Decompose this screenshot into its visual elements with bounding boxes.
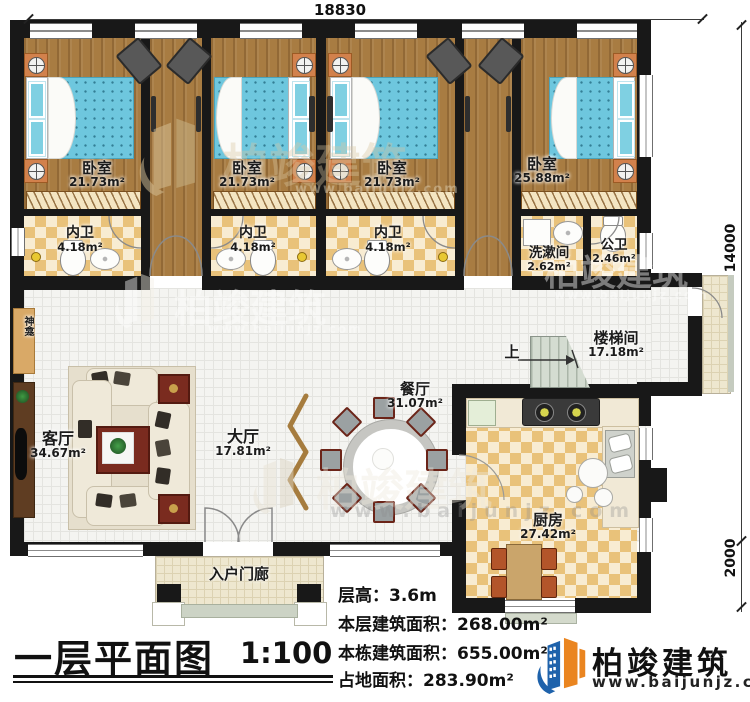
bedroom3-name: 卧室 — [337, 160, 447, 176]
brand-logo-orange-tower — [564, 638, 578, 688]
bedroom2-name: 卧室 — [192, 160, 302, 176]
stairwell-name: 楼梯间 — [561, 330, 671, 346]
publicbath-label: 公卫 2.46m² — [579, 238, 649, 264]
bath2-area: 4.18m² — [198, 241, 308, 253]
dim-right-porch-label: 2000 — [723, 525, 739, 591]
stairs-up-label: 上 — [502, 344, 522, 360]
brand-logo-orange-slab — [579, 649, 585, 679]
living-label: 客厅 34.67m² — [3, 430, 113, 460]
bedroom4-name: 卧室 — [487, 156, 597, 172]
brand-logo-icon — [534, 634, 592, 696]
entry-porch-label: 入户门廊 — [184, 566, 294, 582]
side-porch-door-arc — [692, 288, 722, 318]
spec-floor-height: 层高：3.6m — [338, 581, 437, 606]
spec-floor-area-value: 268.00m² — [457, 615, 548, 635]
bath1-label: 内卫 4.18m² — [25, 226, 135, 254]
bedroom4-label: 卧室 25.88m² — [487, 156, 597, 185]
spec-building-area: 本栋建筑面积：655.00m² — [338, 639, 548, 664]
spec-floor-height-label: 层高： — [338, 586, 389, 606]
spec-building-area-label: 本栋建筑面积： — [338, 644, 457, 664]
bath3-area: 4.18m² — [333, 241, 443, 253]
dim-line-top — [28, 19, 704, 20]
kitchen-label: 厨房 27.42m² — [493, 512, 603, 541]
kitchen-area: 27.42m² — [493, 528, 603, 541]
stairwell-label: 楼梯间 17.18m² — [561, 330, 671, 359]
dining-label: 餐厅 31.07m² — [360, 381, 470, 410]
dining-name: 餐厅 — [360, 381, 470, 397]
dining-area: 31.07m² — [360, 397, 470, 410]
kitchen-name: 厨房 — [493, 512, 603, 528]
spec-floor-area-label: 本层建筑面积： — [338, 615, 457, 635]
entry-door-arc-left — [205, 508, 239, 542]
dim-right-main-label: 14000 — [723, 213, 739, 283]
publicbath-area: 2.46m² — [579, 253, 649, 265]
bath3-name: 内卫 — [333, 226, 443, 241]
spec-floor-height-value: 3.6m — [389, 586, 437, 606]
spec-footprint-area-label: 占地面积： — [338, 671, 423, 691]
hall-area: 17.81m² — [188, 445, 298, 458]
bath3-label: 内卫 4.18m² — [333, 226, 443, 254]
living-area: 34.67m² — [3, 447, 113, 460]
bedroom3-label: 卧室 21.73m² — [337, 160, 447, 189]
publicbath-name: 公卫 — [579, 238, 649, 253]
plan-scale: 1:100 — [240, 636, 332, 670]
bath1-area: 4.18m² — [25, 241, 135, 253]
brand-url: www.baijunjz.com — [592, 673, 750, 691]
floor-plan: 神龛 — [0, 0, 750, 702]
brand-logo — [534, 634, 594, 700]
bedroom1-label: 卧室 21.73m² — [42, 160, 152, 189]
bath2-name: 内卫 — [198, 226, 308, 241]
bath2-label: 内卫 4.18m² — [198, 226, 308, 254]
hall-name: 大厅 — [188, 428, 298, 445]
bedroom1-name: 卧室 — [42, 160, 152, 176]
bath1-name: 内卫 — [25, 226, 135, 241]
entry-door-arc-right — [238, 508, 272, 542]
dim-line-right — [741, 22, 742, 612]
dim-top-label: 18830 — [280, 1, 400, 19]
bedroom4-area: 25.88m² — [487, 172, 597, 185]
spec-footprint-area-value: 283.90m² — [423, 671, 514, 691]
bedroom2-area: 21.73m² — [192, 176, 302, 189]
hall-label: 大厅 17.81m² — [188, 428, 298, 458]
bedroom1-area: 21.73m² — [42, 176, 152, 189]
kitchen-door-arc — [459, 455, 504, 500]
bedroom3-area: 21.73m² — [337, 176, 447, 189]
title-underline-thin — [13, 681, 333, 683]
spec-floor-area: 本层建筑面积：268.00m² — [338, 610, 548, 635]
title-underline-thick — [13, 675, 333, 678]
living-name: 客厅 — [3, 430, 113, 447]
stairwell-area: 17.18m² — [561, 346, 671, 359]
spec-footprint-area: 占地面积：283.90m² — [338, 666, 514, 691]
bedroom2-label: 卧室 21.73m² — [192, 160, 302, 189]
corridor-a-door-arc — [150, 236, 202, 276]
